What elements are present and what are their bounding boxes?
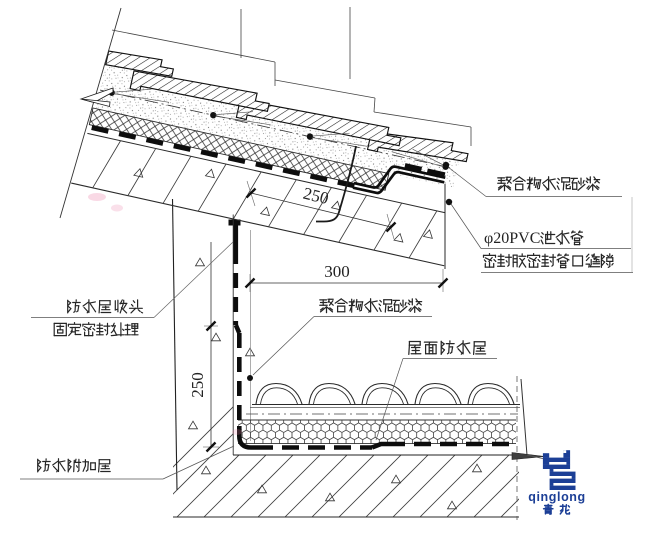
svg-text:φ20PVC: φ20PVC	[484, 230, 540, 247]
svg-text:qinglong: qinglong	[528, 490, 586, 504]
svg-text:300: 300	[324, 262, 350, 281]
svg-text:250: 250	[188, 372, 207, 398]
